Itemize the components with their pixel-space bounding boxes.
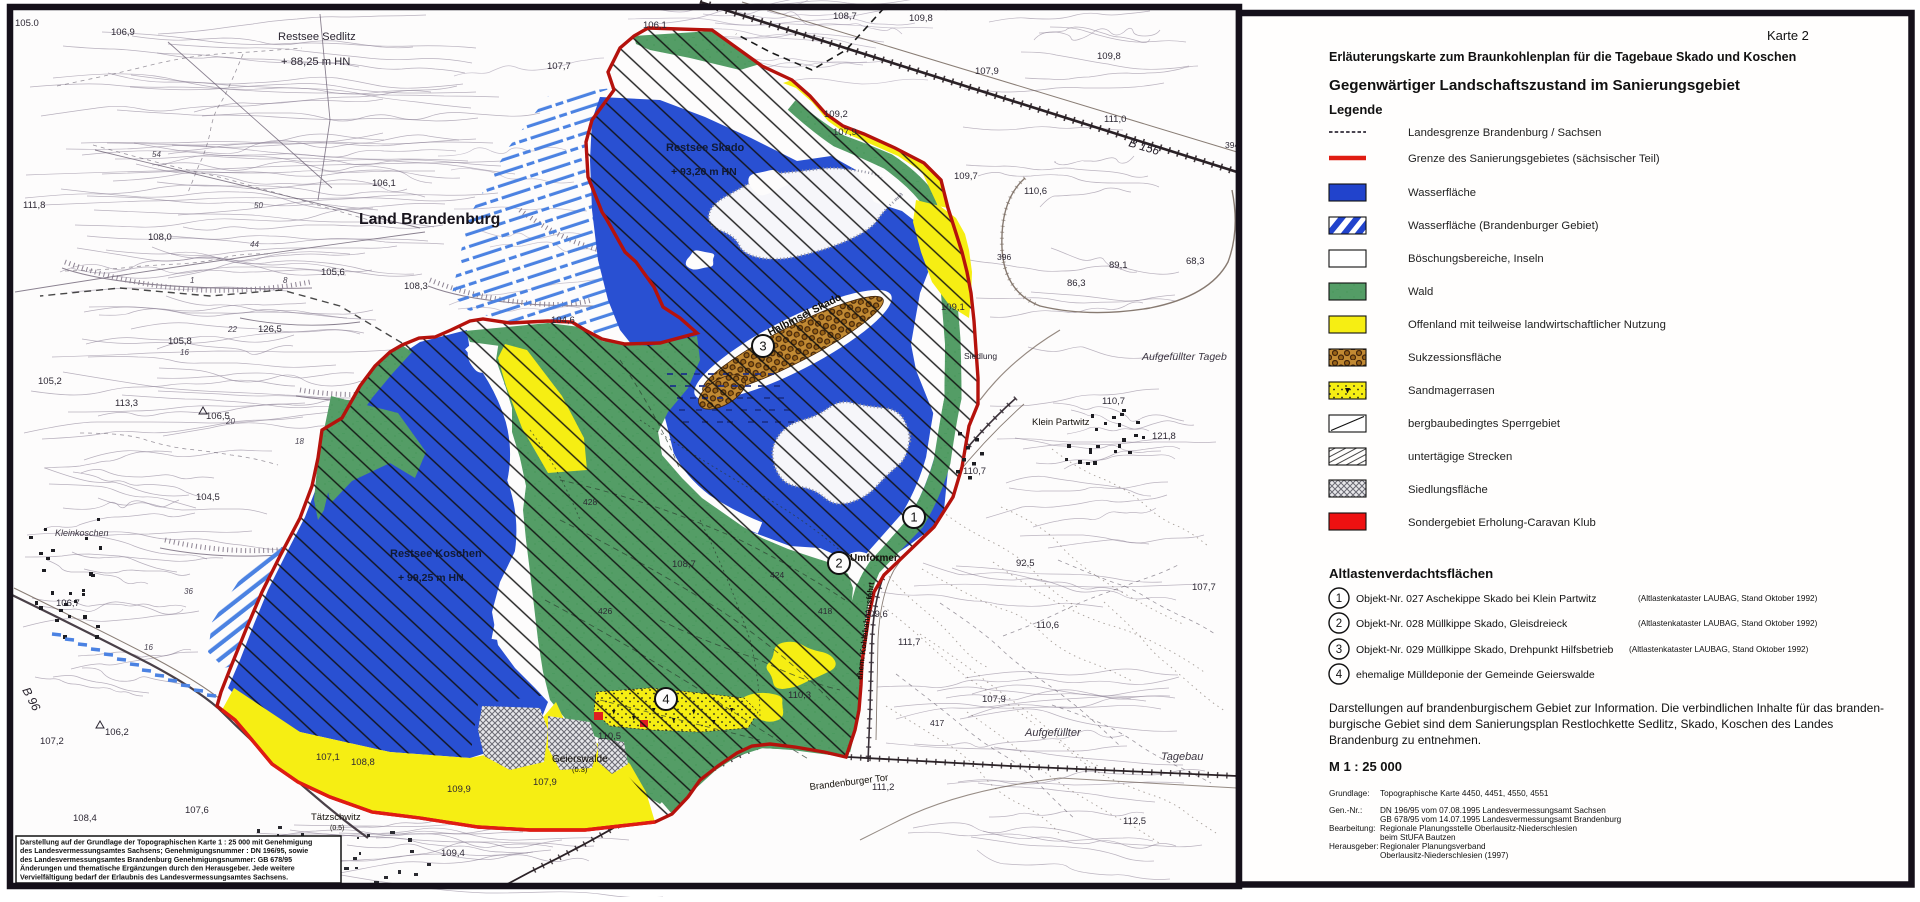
svg-text:Restsee Skado: Restsee Skado [666,142,745,154]
svg-text:126,5: 126,5 [258,324,282,335]
svg-text:111,8: 111,8 [23,200,45,211]
svg-text:Objekt-Nr. 028 Müllkippe Skad: Objekt-Nr. 028 Müllkippe Skado, Gleisdre… [1356,618,1568,630]
svg-text:110,7: 110,7 [963,466,986,477]
svg-text:+ 88,25 m HN: + 88,25 m HN [281,56,350,68]
svg-text:108,3: 108,3 [404,281,428,292]
svg-text:106,1: 106,1 [372,178,396,189]
svg-text:110,7: 110,7 [1102,396,1125,407]
svg-text:107,7: 107,7 [1192,582,1216,593]
svg-text:36: 36 [184,587,193,596]
svg-text:Sandmagerrasen: Sandmagerrasen [1408,385,1495,397]
svg-text:16: 16 [144,643,153,652]
svg-text:109,9: 109,9 [447,784,471,795]
svg-text:Wald: Wald [1408,286,1433,298]
svg-text:+ 99,25 m HN: + 99,25 m HN [398,572,464,584]
svg-text:Wasserfläche: Wasserfläche [1408,187,1476,199]
svg-text:111,7: 111,7 [898,637,920,648]
svg-text:4: 4 [1336,669,1343,681]
svg-text:109,7: 109,7 [954,171,978,182]
svg-text:M 1 : 25 000: M 1 : 25 000 [1329,759,1402,774]
svg-text:Vervielfältigung bedarf der Er: Vervielfältigung bedarf der Erlaubnis de… [20,873,288,881]
svg-text:Wasserfläche (Brandenburger Ge: Wasserfläche (Brandenburger Gebiet) [1408,220,1599,232]
svg-text:121,8: 121,8 [1152,431,1176,442]
svg-text:Gegenwärtiger Landschaftszusta: Gegenwärtiger Landschaftszustand im Sani… [1329,77,1740,94]
svg-text:106,2: 106,2 [105,727,129,738]
svg-text:+ 93,20 m HN: + 93,20 m HN [671,166,737,178]
svg-text:1: 1 [1336,593,1342,605]
svg-text:Sondergebiet Erholung-Caravan: Sondergebiet Erholung-Caravan Klub [1408,517,1596,529]
svg-text:Siedlungsfläche: Siedlungsfläche [1408,484,1488,496]
svg-text:106,5: 106,5 [206,411,230,422]
svg-text:Umformer: Umformer [850,553,898,564]
svg-text:110,5: 110,5 [598,731,621,742]
svg-text:Objekt-Nr. 029 Müllkippe Skad: Objekt-Nr. 029 Müllkippe Skado, Drehpunk… [1356,644,1614,656]
svg-text:50: 50 [254,201,263,210]
svg-text:18: 18 [295,437,304,446]
svg-text:22: 22 [227,325,237,334]
svg-text:108,7: 108,7 [672,559,696,570]
svg-text:Kleinkoschen: Kleinkoschen [55,528,109,538]
svg-text:3: 3 [1336,644,1342,656]
svg-text:92,5: 92,5 [1016,558,1035,569]
svg-text:105,2: 105,2 [38,376,62,387]
svg-text:105,8: 105,8 [168,336,192,347]
svg-text:110,6: 110,6 [1024,186,1047,197]
svg-text:424: 424 [770,570,784,580]
svg-text:106,1: 106,1 [643,20,667,31]
svg-text:417: 417 [930,718,944,728]
svg-text:(Altlastenkataster LAUBAG, Sta: (Altlastenkataster LAUBAG, Stand Oktober… [1638,594,1818,603]
svg-text:108,8: 108,8 [351,757,375,768]
svg-text:Oberlausitz-Niederschlesien (1: Oberlausitz-Niederschlesien (1997) [1380,851,1509,860]
svg-text:Regionaler Planungsverband: Regionaler Planungsverband [1380,842,1486,851]
svg-text:396: 396 [997,252,1011,262]
svg-text:Herausgeber:: Herausgeber: [1329,842,1379,851]
svg-text:Grenze des Sanierungsgebietes: Grenze des Sanierungsgebietes (sächsisch… [1408,153,1660,165]
svg-text:beim StUFA Bautzen: beim StUFA Bautzen [1380,833,1456,842]
svg-text:105.0: 105.0 [15,18,39,29]
svg-text:428: 428 [583,497,597,507]
svg-text:Tätzschwitz: Tätzschwitz [311,812,361,823]
svg-text:Tagebau: Tagebau [1161,751,1203,763]
svg-text:Änderungen und thematische Erg: Änderungen und thematische Ergänzungen d… [20,865,295,873]
svg-text:107,9: 107,9 [982,694,1006,705]
svg-text:Böschungsbereiche, Inseln: Böschungsbereiche, Inseln [1408,253,1544,265]
svg-text:Aufgefüllter Tageb: Aufgefüllter Tageb [1141,351,1227,363]
svg-text:Darstellungen auf brandenburgi: Darstellungen auf brandenburgischem Gebi… [1329,701,1884,715]
svg-text:2: 2 [835,556,842,571]
svg-text:Bearbeitung:: Bearbeitung: [1329,824,1375,833]
svg-text:112,5: 112,5 [1123,816,1146,827]
svg-text:1: 1 [910,510,917,525]
svg-text:Legende: Legende [1329,102,1382,117]
svg-text:3: 3 [759,339,766,354]
svg-text:Karte 2: Karte 2 [1767,28,1809,43]
svg-text:109,4: 109,4 [441,848,465,859]
svg-text:des Landesvermessungsamtes Sac: des Landesvermessungsamtes Sachsens; Gen… [20,847,308,855]
svg-text:109,2: 109,2 [824,109,848,120]
svg-text:2: 2 [1336,618,1342,630]
svg-text:Siedlung: Siedlung [964,351,997,361]
svg-text:109,6: 109,6 [864,609,888,620]
svg-text:Geierswalde: Geierswalde [552,754,608,765]
svg-text:GB 678/95 vom 14.07.1995 Lande: GB 678/95 vom 14.07.1995 Landesvermessun… [1380,815,1622,824]
svg-text:Darstellung auf der Grundlage: Darstellung auf der Grundlage der Topogr… [20,839,312,847]
svg-text:Restsee Koschen: Restsee Koschen [390,548,482,560]
svg-text:Klein Partwitz: Klein Partwitz [1032,417,1090,428]
svg-text:111,0: 111,0 [1104,114,1126,125]
svg-text:108,0: 108,0 [148,232,172,243]
svg-text:108,4: 108,4 [73,813,97,824]
svg-text:109,1: 109,1 [941,302,965,313]
svg-text:110,6: 110,6 [1036,620,1059,631]
svg-text:(0.3): (0.3) [572,765,588,774]
svg-text:110,3: 110,3 [788,690,811,701]
svg-text:burgische Gebiet sind dem: burgische Gebiet sind dem Sanierungsplan… [1329,717,1833,731]
svg-text:106,7: 106,7 [56,598,80,609]
svg-text:ehemalige Mülldeponie der Geme: ehemalige Mülldeponie der Gemeinde Geier… [1356,669,1595,681]
svg-text:untertägige Strecken: untertägige Strecken [1408,451,1512,463]
svg-text:16: 16 [180,348,189,357]
svg-text:des Landesvermessungsamtes B: des Landesvermessungsamtes Brandenburg G… [20,856,292,864]
svg-text:(Altlastenkataster LAUBAG, Sta: (Altlastenkataster LAUBAG, Stand Oktober… [1629,645,1809,654]
svg-text:109,8: 109,8 [1097,51,1121,62]
svg-text:(0.5): (0.5) [330,825,344,832]
svg-text:Regionale Planungsstelle Oberl: Regionale Planungsstelle Oberlausitz-Nie… [1380,824,1578,833]
svg-text:Aufgefüllter: Aufgefüllter [1024,727,1082,739]
svg-text:Land Brandenburg: Land Brandenburg [359,211,500,228]
svg-text:Restsee Sedlitz: Restsee Sedlitz [278,31,356,43]
svg-text:86,3: 86,3 [1067,278,1086,289]
svg-text:109,8: 109,8 [909,13,933,24]
svg-text:107,9: 107,9 [533,777,557,788]
svg-text:113,3: 113,3 [115,398,138,409]
svg-text:104,5: 104,5 [196,492,220,503]
svg-text:426: 426 [598,606,612,616]
svg-text:bergbaubedingtes Sperrgebiet: bergbaubedingtes Sperrgebiet [1408,418,1561,430]
svg-text:107,9: 107,9 [833,127,857,138]
svg-text:111,2: 111,2 [872,782,894,793]
svg-text:Erläuterungskarte zum Braunkoh: Erläuterungskarte zum Braunkohlenplan fü… [1329,50,1796,64]
svg-text:54: 54 [152,150,161,159]
svg-text:107,9: 107,9 [975,66,999,77]
svg-text:Grundlage:: Grundlage: [1329,789,1370,798]
svg-text:68,3: 68,3 [1186,256,1205,267]
svg-text:(Altlastenkataster LAUBAG, Sta: (Altlastenkataster LAUBAG, Stand Oktober… [1638,619,1818,628]
svg-text:Altlastenverdachtsflächen: Altlastenverdachtsflächen [1329,566,1493,581]
svg-text:89,1: 89,1 [1109,260,1128,271]
svg-text:Sukzessionsfläche: Sukzessionsfläche [1408,352,1502,364]
svg-text:107,1: 107,1 [316,752,340,763]
svg-text:Topographische Karte 4450, 445: Topographische Karte 4450, 4451, 4550, 4… [1380,789,1549,798]
svg-text:107,2: 107,2 [40,736,64,747]
svg-text:104,6: 104,6 [551,315,575,326]
svg-text:105,6: 105,6 [321,267,345,278]
svg-text:107,7: 107,7 [547,61,571,72]
svg-text:DN 196/95 vom 07.08.1995 Lande: DN 196/95 vom 07.08.1995 Landesvermessun… [1380,806,1606,815]
svg-text:Brandenburg zu entnehmen.: Brandenburg zu entnehmen. [1329,733,1481,747]
svg-text:44: 44 [250,240,259,249]
svg-text:107,6: 107,6 [185,805,209,816]
svg-text:4: 4 [662,692,669,707]
svg-text:108,7: 108,7 [833,11,857,22]
svg-text:Gen.-Nr.:: Gen.-Nr.: [1329,806,1362,815]
svg-text:Objekt-Nr. 027 Aschekippe Ska: Objekt-Nr. 027 Aschekippe Skado bei Klei… [1356,593,1596,605]
svg-text:106,9: 106,9 [111,27,135,38]
svg-text:Offenland mit teilweise landwi: Offenland mit teilweise landwirtschaftli… [1408,319,1666,331]
svg-text:Landesgrenze Brandenburg / Sac: Landesgrenze Brandenburg / Sachsen [1408,127,1601,139]
svg-text:418: 418 [818,606,832,616]
